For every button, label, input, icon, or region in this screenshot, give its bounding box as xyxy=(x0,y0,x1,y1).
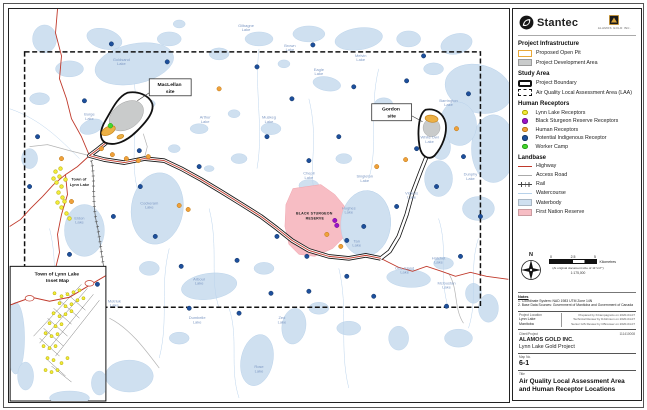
lynn-lake-receptor-inset-point xyxy=(58,302,61,305)
lynn-lake-receptor-point xyxy=(59,167,63,171)
lake-label: BrownLake xyxy=(284,43,295,52)
human-receptor-point xyxy=(403,157,407,161)
potential-indigenous-receptor-point xyxy=(67,252,71,256)
scale-bar: 0 2.5 5 Kilometres (At original document… xyxy=(549,252,636,275)
legend-section-project-infrastructure: Project InfrastructureProposed Open PitP… xyxy=(518,41,636,66)
lake-label: MelvinLake xyxy=(355,53,366,62)
compass-rose-icon xyxy=(519,258,543,282)
lynn-lake-receptor-point xyxy=(55,181,59,185)
potential-indigenous-receptor-point xyxy=(269,291,273,295)
scale-ratio: 1:175,000 xyxy=(549,271,607,275)
legend-item-label: Worker Camp xyxy=(536,144,569,150)
legend-item: First Nation Reserve xyxy=(518,209,636,216)
potential-indigenous-receptor-point xyxy=(307,158,311,162)
lynn-lake-receptor-inset-point xyxy=(44,368,47,371)
legend-sections: Project InfrastructureProposed Open PitP… xyxy=(518,36,636,218)
map-sheet: Town of Lynn Lake BLACK STURGEON RESERVE xyxy=(3,3,644,408)
lynn-lake-receptor-point xyxy=(65,212,69,216)
human-receptor-point xyxy=(136,158,140,162)
potential-indigenous-receptor-point xyxy=(404,79,408,83)
legend-item: Project Development Area xyxy=(518,59,636,66)
human-receptor-point xyxy=(110,152,114,156)
potential-indigenous-receptor-point xyxy=(337,134,341,138)
legend-item: Air Quality Local Assessment Area (LAA) xyxy=(518,89,636,96)
lynn-lake-receptor-inset-point xyxy=(54,325,57,328)
lynn-lake-receptor-inset-point xyxy=(78,289,81,292)
credit-line: Senior GIS Review by CBrouwer on 2020-04… xyxy=(565,322,635,326)
legend-item-label: First Nation Reserve xyxy=(536,209,584,215)
potential-indigenous-receptor-point xyxy=(434,184,438,188)
legend-item: Proposed Open Pit xyxy=(518,50,636,57)
lynn-lake-receptor-inset-point xyxy=(52,312,55,315)
lynn-lake-receptor-inset-point xyxy=(54,345,57,348)
stantec-wordmark: Stantec xyxy=(537,17,578,29)
lynn-lake-receptor-point xyxy=(63,200,67,204)
potential-indigenous-receptor-point xyxy=(197,164,201,168)
legend-item: Lynn Lake Receptors xyxy=(518,110,636,116)
worker-camp-point xyxy=(108,123,113,128)
dot-swatch-icon xyxy=(522,135,528,141)
highway-shield-icon xyxy=(85,281,94,287)
line-swatch-icon xyxy=(518,175,532,177)
legend-section-human-receptors: Human ReceptorsLynn Lake ReceptorsBlack … xyxy=(518,101,636,150)
lynn-lake-receptor-inset-point xyxy=(70,310,73,313)
map-credits: Prepared by KCampagnolo on 2020-04-07 Te… xyxy=(561,313,635,327)
human-receptor-point xyxy=(59,156,63,160)
scale-unit: Kilometres xyxy=(600,260,617,264)
map-title: Air Quality Local Assessment Area and Hu… xyxy=(519,378,635,395)
black-sturgeon-receptor-point xyxy=(333,218,337,222)
potential-indigenous-receptor-point xyxy=(137,148,141,152)
lynn-lake-receptor-inset-point xyxy=(66,357,69,360)
lynn-lake-receptor-inset-point xyxy=(60,323,63,326)
client-project-label: Client/Project xyxy=(519,332,538,336)
project-location-province: Manitoba xyxy=(519,322,561,327)
potential-indigenous-receptor-point xyxy=(394,204,398,208)
human-receptor-point xyxy=(146,154,150,158)
client-project-row: Client/Project 111410008 ALAMOS GOLD INC… xyxy=(518,330,636,354)
dot-swatch-icon xyxy=(522,127,528,133)
lynn-lake-receptor-inset-point xyxy=(72,291,75,294)
potential-indigenous-receptor-point xyxy=(305,254,309,258)
legend-item: Project Boundary xyxy=(518,80,636,87)
line-swatch-icon xyxy=(518,166,532,168)
lynn-lake-receptor-inset-point xyxy=(50,335,53,338)
lynn-lake-receptor-inset-point xyxy=(48,322,51,325)
potential-indigenous-receptor-point xyxy=(458,254,462,258)
lynn-lake-receptor-point xyxy=(57,191,61,195)
legend-item-label: Proposed Open Pit xyxy=(536,50,581,56)
lynn-lake-receptor-inset-point xyxy=(60,295,63,298)
map-no-label: Map No. xyxy=(519,355,635,359)
lynn-lake-receptor-point xyxy=(60,206,64,210)
fill-swatch-icon xyxy=(518,199,532,206)
lynn-lake-receptor-inset-point xyxy=(52,359,55,362)
town-of-lynn-lake-label: Town of Lynn Lake xyxy=(70,177,90,187)
legend-item-label: Highway xyxy=(536,163,556,169)
lynn-lake-receptor-inset-point xyxy=(64,313,67,316)
legend-item: Highway xyxy=(518,163,636,170)
potential-indigenous-receptor-point xyxy=(82,99,86,103)
lynn-lake-receptor-inset-point xyxy=(44,332,47,335)
lynn-lake-receptor-inset-point xyxy=(66,293,69,296)
potential-indigenous-receptor-point xyxy=(179,264,183,268)
legend-item: Human Receptors xyxy=(518,127,636,133)
potential-indigenous-receptor-point xyxy=(311,43,315,47)
black-sturgeon-receptor-point xyxy=(335,223,339,227)
potential-indigenous-receptor-point xyxy=(138,184,142,188)
lynn-lake-receptor-inset-point xyxy=(53,292,56,295)
title-label: Title xyxy=(519,372,635,376)
lynn-lake-receptor-inset-point xyxy=(70,303,73,306)
legend-item-label: Lynn Lake Receptors xyxy=(536,110,586,116)
potential-indigenous-receptor-point xyxy=(362,224,366,228)
map-number: 6-1 xyxy=(519,360,635,367)
legend-item-label: Waterbody xyxy=(536,200,561,206)
potential-indigenous-receptor-point xyxy=(275,234,279,238)
legend-item-label: Access Road xyxy=(536,172,567,178)
potential-indigenous-receptor-point xyxy=(235,258,239,262)
lynn-lake-receptor-point xyxy=(68,217,72,221)
legend-item-label: Project Development Area xyxy=(536,60,598,66)
lynn-lake-receptor-inset-point xyxy=(56,368,59,371)
dot-swatch-icon xyxy=(522,118,528,124)
logo-bar: Stantec Alamos Gold Inc. xyxy=(518,13,636,36)
map-title-row: Title Air Quality Local Assessment Area … xyxy=(518,371,636,397)
legend-section-title: Landbase xyxy=(518,155,636,161)
lynn-lake-receptor-inset-point xyxy=(48,347,51,350)
laa-swatch-icon xyxy=(518,89,532,96)
legend-item-label: Rail xyxy=(536,181,545,187)
legend-item-label: Air Quality Local Assessment Area (LAA) xyxy=(536,90,632,96)
stantec-logo: Stantec xyxy=(519,15,578,30)
potential-indigenous-receptor-point xyxy=(352,85,356,89)
legend-section-title: Project Infrastructure xyxy=(518,41,636,47)
potential-indigenous-receptor-point xyxy=(478,214,482,218)
legend-item: Rail xyxy=(518,181,636,187)
potential-indigenous-receptor-point xyxy=(265,134,269,138)
potential-indigenous-receptor-point xyxy=(111,214,115,218)
potential-indigenous-receptor-point xyxy=(414,146,418,150)
dev-area-swatch-icon xyxy=(518,59,532,66)
legend-section-title: Study Area xyxy=(518,71,636,77)
lynn-lake-receptor-inset-point xyxy=(82,297,85,300)
legend-panel: Stantec Alamos Gold Inc. Project Infrast… xyxy=(512,8,642,401)
human-receptor-point xyxy=(177,203,181,207)
potential-indigenous-receptor-point xyxy=(290,97,294,101)
lynn-lake-receptor-inset-point xyxy=(42,345,45,348)
lake-label: RoseLake xyxy=(254,364,264,373)
scale-bar-graphic xyxy=(549,259,597,264)
legend-item: Worker Camp xyxy=(518,144,636,150)
potential-indigenous-receptor-point xyxy=(187,306,191,310)
open-pit-swatch-icon xyxy=(518,50,532,57)
alamos-wordmark: Alamos Gold Inc. xyxy=(598,26,631,30)
potential-indigenous-receptor-point xyxy=(307,289,311,293)
lynn-lake-receptor-point xyxy=(60,185,64,189)
watercourse-swatch-icon xyxy=(518,193,532,194)
map-frame: Town of Lynn Lake BLACK STURGEON RESERVE xyxy=(8,8,510,403)
potential-indigenous-receptor-point xyxy=(35,134,39,138)
human-receptor-point xyxy=(124,156,128,160)
legend-item-label: Black Sturgeon Reserve Receptors xyxy=(536,118,619,124)
orientation-block: N 0 2.5 5 Kilometres (At orig xyxy=(518,252,636,287)
legend-item-label: Human Receptors xyxy=(536,127,579,133)
lake-label: ChepilLake xyxy=(303,171,314,180)
human-receptor-point xyxy=(325,232,329,236)
lynn-lake-receptor-inset-point xyxy=(46,357,49,360)
potential-indigenous-receptor-point xyxy=(27,184,31,188)
potential-indigenous-receptor-point xyxy=(153,234,157,238)
potential-indigenous-receptor-point xyxy=(466,92,470,96)
lynn-lake-receptor-point xyxy=(56,201,60,205)
lynn-lake-receptor-inset-point xyxy=(50,370,53,373)
human-receptor-point xyxy=(454,127,458,131)
legend-section-landbase: LandbaseHighwayAccess RoadRailWatercours… xyxy=(518,155,636,216)
potential-indigenous-receptor-point xyxy=(345,238,349,242)
human-receptor-point xyxy=(375,164,379,168)
lynn-lake-receptor-point xyxy=(54,170,58,174)
human-receptor-point xyxy=(217,87,221,91)
potential-indigenous-receptor-point xyxy=(109,42,113,46)
legend-item-label: Watercourse xyxy=(536,190,566,196)
client-name: ALAMOS GOLD INC. xyxy=(519,337,635,343)
potential-indigenous-receptor-point xyxy=(461,154,465,158)
lynn-lake-receptor-point xyxy=(61,196,65,200)
rail-swatch-icon xyxy=(518,182,532,187)
lake-label: EldonLake xyxy=(74,215,84,224)
scale-note: (At original document size of 11"x17") xyxy=(549,266,607,270)
potential-indigenous-receptor-point xyxy=(372,294,376,298)
map-notes: Notes 1. Coordinate System: NAD 1983 UTM… xyxy=(518,292,636,310)
potential-indigenous-receptor-point xyxy=(95,282,99,286)
alamos-logo-icon xyxy=(609,15,619,25)
potential-indigenous-receptor-point xyxy=(444,304,448,308)
fill-swatch-icon xyxy=(518,209,532,216)
map-canvas[interactable]: Town of Lynn Lake BLACK STURGEON RESERVE xyxy=(9,9,509,402)
dot-swatch-icon xyxy=(522,144,528,150)
human-receptor-point xyxy=(99,146,103,150)
legend-item: Potential Indigenous Receptor xyxy=(518,135,636,141)
legend-item-label: Project Boundary xyxy=(536,80,577,86)
human-receptor-point xyxy=(339,244,343,248)
dot-swatch-icon xyxy=(522,110,528,116)
human-receptor-point xyxy=(186,207,190,211)
lynn-lake-receptor-inset-point xyxy=(60,362,63,365)
project-name: Lynn Lake Gold Project xyxy=(519,344,635,350)
map-number-row: Map No. 6-1 xyxy=(518,354,636,371)
project-boundary-swatch-icon xyxy=(518,80,532,87)
project-location-row: Project Location Lynn Lake Manitoba Prep… xyxy=(518,312,636,331)
legend-item: Black Sturgeon Reserve Receptors xyxy=(518,118,636,124)
potential-indigenous-receptor-point xyxy=(421,54,425,58)
lynn-lake-receptor-inset-point xyxy=(64,305,67,308)
legend-section-title: Human Receptors xyxy=(518,101,636,107)
lynn-lake-receptor-point xyxy=(58,175,62,179)
lake-label: EagleLake xyxy=(314,67,325,76)
potential-indigenous-receptor-point xyxy=(165,60,169,64)
potential-indigenous-receptor-point xyxy=(255,65,259,69)
legend-item: Access Road xyxy=(518,172,636,179)
credit-line: Technical Review by DJohnson on 2020-04-… xyxy=(565,317,635,321)
potential-indigenous-receptor-point xyxy=(345,274,349,278)
human-receptor-point xyxy=(69,199,73,203)
lynn-lake-receptor-inset-point xyxy=(58,315,61,318)
lynn-lake-receptor-inset-point xyxy=(56,333,59,336)
title-block: Project Location Lynn Lake Manitoba Prep… xyxy=(518,311,636,397)
lynn-lake-receptor-inset-point xyxy=(76,299,79,302)
legend-item: Waterbody xyxy=(518,199,636,206)
north-arrow: N xyxy=(518,252,544,287)
stantec-logo-icon xyxy=(519,15,534,30)
lynn-lake-receptor-point xyxy=(52,177,56,181)
legend-item: Watercourse xyxy=(518,190,636,197)
legend-section-study-area: Study AreaProject BoundaryAir Quality Lo… xyxy=(518,71,636,96)
project-number: 111410008 xyxy=(620,332,635,336)
note-line: 2. Base Data Sources: Government of Mani… xyxy=(518,303,636,307)
alamos-gold-logo: Alamos Gold Inc. xyxy=(598,15,631,30)
lynn-lake-receptor-point xyxy=(64,178,68,182)
legend-item-label: Potential Indigenous Receptor xyxy=(536,135,607,141)
potential-indigenous-receptor-point xyxy=(237,311,241,315)
highway-shield-icon xyxy=(25,295,34,301)
